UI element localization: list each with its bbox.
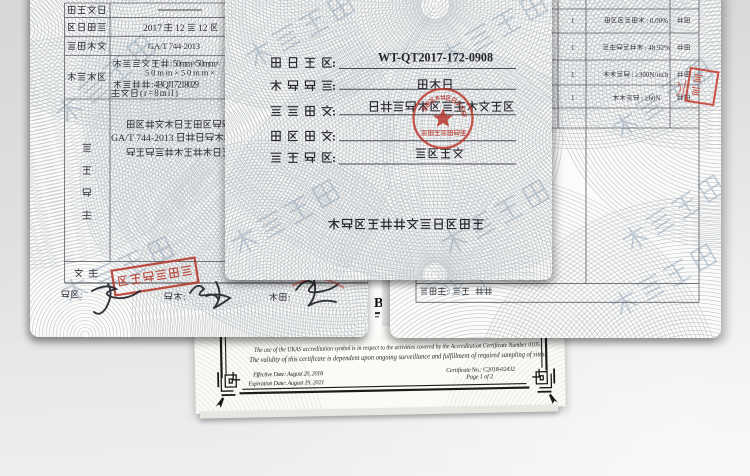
svg-text:WT-QT2017-172-0908: WT-QT2017-172-0908 [378, 51, 493, 65]
svg-text::: : [183, 292, 186, 302]
svg-text::: : [80, 290, 83, 300]
svg-text::: : [288, 293, 291, 303]
svg-text:1: 1 [571, 17, 575, 25]
svg-text:B: B [374, 296, 382, 311]
svg-text::: : [332, 79, 336, 93]
svg-text:1: 1 [571, 94, 575, 102]
svg-text:(r=8mil): (r=8mil) [140, 88, 178, 98]
svg-text:: ≥60N: : ≥60N [641, 95, 661, 103]
svg-text:Effective Date: August 20, 201: Effective Date: August 20, 2018 [252, 370, 324, 378]
svg-text:12: 12 [198, 24, 208, 34]
svg-text:: 48.92%: : 48.92% [645, 44, 670, 52]
svg-text:12: 12 [175, 24, 185, 34]
svg-text:: 73.50%: : 73.50% [645, 0, 670, 1]
svg-text:GA/T 744-2013: GA/T 744-2013 [111, 133, 174, 144]
svg-text:Page 1 of 2: Page 1 of 2 [465, 373, 493, 381]
svg-text:2017: 2017 [143, 24, 162, 34]
svg-text:: ≥300N/inch: : ≥300N/inch [631, 71, 669, 79]
svg-text:1: 1 [571, 71, 575, 79]
svg-text::: : [332, 151, 336, 165]
svg-text::: : [332, 56, 336, 70]
svg-text:GA/T 744-2013: GA/T 744-2013 [148, 41, 200, 51]
svg-text:: 0.00%: : 0.00% [646, 17, 668, 25]
svg-text::: : [332, 105, 336, 119]
svg-text:1: 1 [571, 44, 575, 52]
svg-text:50mm×50mm×: 50mm×50mm× [145, 68, 215, 78]
svg-text:Expiration Date: August 19, 20: Expiration Date: August 19, 2021 [247, 379, 324, 388]
svg-text::: : [332, 130, 336, 144]
